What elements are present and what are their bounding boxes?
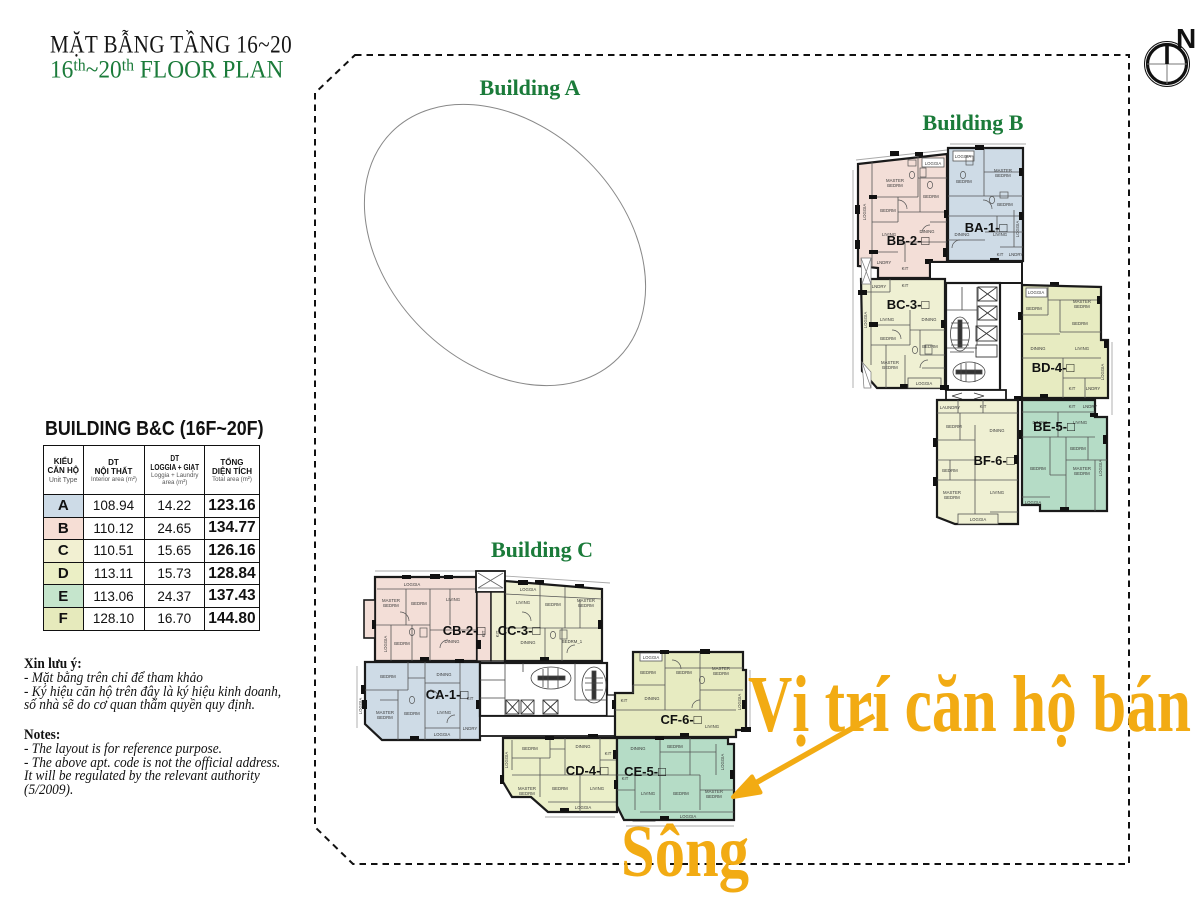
svg-text:LOGGIA: LOGGIA [434, 732, 451, 737]
svg-text:Vị trí căn hộ bán: Vị trí căn hộ bán [748, 661, 1191, 749]
svg-text:BEDRM: BEDRM [880, 336, 896, 341]
svg-text:BEDRM: BEDRM [673, 791, 689, 796]
svg-text:BEDRM: BEDRM [394, 641, 410, 646]
svg-text:LIVING: LIVING [880, 317, 895, 322]
svg-text:BEDRM: BEDRM [1070, 446, 1086, 451]
svg-text:CE-5-□: CE-5-□ [624, 764, 666, 779]
svg-text:LOGGIA: LOGGIA [970, 517, 987, 522]
svg-text:LIVING: LIVING [437, 710, 452, 715]
svg-text:LOGGIA: LOGGIA [1028, 290, 1045, 295]
svg-text:LIVING: LIVING [990, 490, 1005, 495]
svg-text:BEDRM: BEDRM [713, 671, 729, 676]
svg-text:Building C: Building C [491, 537, 593, 562]
svg-text:DINING: DINING [921, 317, 937, 322]
svg-text:BEDRM: BEDRM [956, 179, 972, 184]
svg-text:N: N [1176, 23, 1196, 54]
svg-text:LOGGIA: LOGGIA [504, 752, 509, 769]
svg-text:LOGGIA: LOGGIA [643, 655, 660, 660]
svg-text:DINING: DINING [630, 746, 646, 751]
svg-text:BEDRM: BEDRM [706, 794, 722, 799]
svg-text:LOGGIA: LOGGIA [925, 161, 942, 166]
svg-text:BEDRM: BEDRM [1072, 321, 1088, 326]
svg-text:LIVING: LIVING [446, 597, 461, 602]
svg-text:BEDRM: BEDRM [404, 711, 420, 716]
svg-text:BEDRM: BEDRM [1074, 471, 1090, 476]
svg-text:BEDRM: BEDRM [1030, 466, 1046, 471]
svg-text:KIT: KIT [1069, 404, 1076, 409]
svg-text:LOGGIA: LOGGIA [955, 154, 972, 159]
svg-text:KIT: KIT [605, 751, 612, 756]
svg-text:BEDRM: BEDRM [411, 601, 427, 606]
svg-text:KIT: KIT [980, 404, 987, 409]
svg-text:Building A: Building A [480, 75, 581, 100]
svg-text:DINING: DINING [989, 428, 1005, 433]
svg-text:CA-1-□: CA-1-□ [426, 687, 469, 702]
svg-text:LIVING: LIVING [641, 791, 656, 796]
svg-text:KIT: KIT [902, 266, 909, 271]
svg-text:LNDRY: LNDRY [872, 284, 887, 289]
svg-text:LNDRY: LNDRY [463, 726, 478, 731]
svg-text:BEDRM: BEDRM [676, 670, 692, 675]
svg-text:BEDRM: BEDRM [519, 791, 535, 796]
svg-text:BEDRM: BEDRM [946, 424, 962, 429]
svg-text:DINING: DINING [575, 744, 591, 749]
svg-text:DINING: DINING [436, 672, 452, 677]
svg-text:LAUNDRY: LAUNDRY [940, 405, 961, 410]
svg-text:LOGGIA: LOGGIA [1015, 221, 1020, 238]
svg-text:BEDRM: BEDRM [997, 202, 1013, 207]
svg-text:LOGGIA: LOGGIA [1025, 500, 1042, 505]
svg-text:BEDRM: BEDRM [578, 603, 594, 608]
svg-text:CF-6-□: CF-6-□ [660, 712, 701, 727]
svg-text:CC-3-□: CC-3-□ [498, 623, 541, 638]
svg-text:BEDRM: BEDRM [383, 603, 399, 608]
svg-text:LNDRY: LNDRY [1009, 252, 1024, 257]
svg-text:LIVING: LIVING [1073, 420, 1088, 425]
svg-text:LOGGIA: LOGGIA [737, 694, 742, 711]
svg-text:LOGGIA: LOGGIA [863, 312, 868, 329]
svg-text:Sông: Sông [621, 811, 749, 893]
svg-text:BE-5-□: BE-5-□ [1033, 419, 1075, 434]
svg-text:LOGGIA: LOGGIA [720, 754, 725, 771]
svg-text:BEDRM: BEDRM [887, 183, 903, 188]
svg-text:BB-2-□: BB-2-□ [887, 233, 930, 248]
svg-text:BEDRM: BEDRM [942, 468, 958, 473]
svg-text:KIT: KIT [621, 698, 628, 703]
svg-text:LOGGIA: LOGGIA [575, 805, 592, 810]
svg-text:BEDRM: BEDRM [882, 365, 898, 370]
svg-text:KIT: KIT [902, 283, 909, 288]
svg-text:LNDRY: LNDRY [877, 260, 892, 265]
svg-text:LOGGIA: LOGGIA [916, 381, 933, 386]
svg-text:LIVING: LIVING [516, 600, 531, 605]
svg-text:CB-2-□: CB-2-□ [443, 623, 486, 638]
svg-text:LOGGIA: LOGGIA [520, 587, 537, 592]
svg-text:LOGGIA: LOGGIA [1100, 364, 1105, 381]
svg-text:BEDRM_1: BEDRM_1 [562, 639, 583, 644]
svg-text:KIT: KIT [1069, 386, 1076, 391]
svg-text:KIT: KIT [997, 252, 1004, 257]
svg-text:Building B: Building B [923, 110, 1024, 135]
svg-text:BEDRM: BEDRM [923, 194, 939, 199]
svg-text:BEDRM: BEDRM [552, 786, 568, 791]
svg-text:BEDRM: BEDRM [640, 670, 656, 675]
svg-text:BEDRM: BEDRM [522, 746, 538, 751]
svg-text:LIVING: LIVING [1075, 346, 1090, 351]
svg-text:MẶT BẪNG TẦNG 16~20: MẶT BẪNG TẦNG 16~20 [50, 30, 292, 59]
svg-text:BEDRM: BEDRM [880, 208, 896, 213]
svg-text:DINING: DINING [644, 696, 660, 701]
svg-text:BEDRM: BEDRM [667, 744, 683, 749]
svg-text:LOGGIA: LOGGIA [383, 636, 388, 653]
svg-text:BD-4-□: BD-4-□ [1032, 360, 1075, 375]
svg-text:BF-6-□: BF-6-□ [973, 453, 1014, 468]
svg-text:LNDRY: LNDRY [1083, 404, 1098, 409]
svg-text:LIVING: LIVING [705, 724, 720, 729]
svg-text:BEDRM: BEDRM [377, 715, 393, 720]
svg-text:LNDRY: LNDRY [1086, 386, 1101, 391]
svg-text:BEDRM: BEDRM [995, 173, 1011, 178]
svg-text:BEDRM: BEDRM [380, 674, 396, 679]
svg-text:16th~20th FLOOR PLAN: 16th~20th FLOOR PLAN [50, 55, 283, 84]
svg-text:DINING: DINING [520, 640, 536, 645]
svg-text:LOGGIA: LOGGIA [1098, 460, 1103, 477]
svg-text:BA-1-□: BA-1-□ [965, 220, 1008, 235]
svg-text:BEDRM: BEDRM [1074, 304, 1090, 309]
svg-text:DINING: DINING [1030, 346, 1046, 351]
svg-text:LOGGIA: LOGGIA [862, 204, 867, 221]
svg-text:BEDRM: BEDRM [944, 495, 960, 500]
svg-text:LIVING: LIVING [590, 786, 605, 791]
svg-text:LOGGIA: LOGGIA [404, 582, 421, 587]
svg-text:BC-3-□: BC-3-□ [887, 297, 930, 312]
svg-text:BEDRM: BEDRM [545, 602, 561, 607]
svg-text:BEDRM: BEDRM [1026, 306, 1042, 311]
svg-text:CD-4-□: CD-4-□ [566, 763, 609, 778]
